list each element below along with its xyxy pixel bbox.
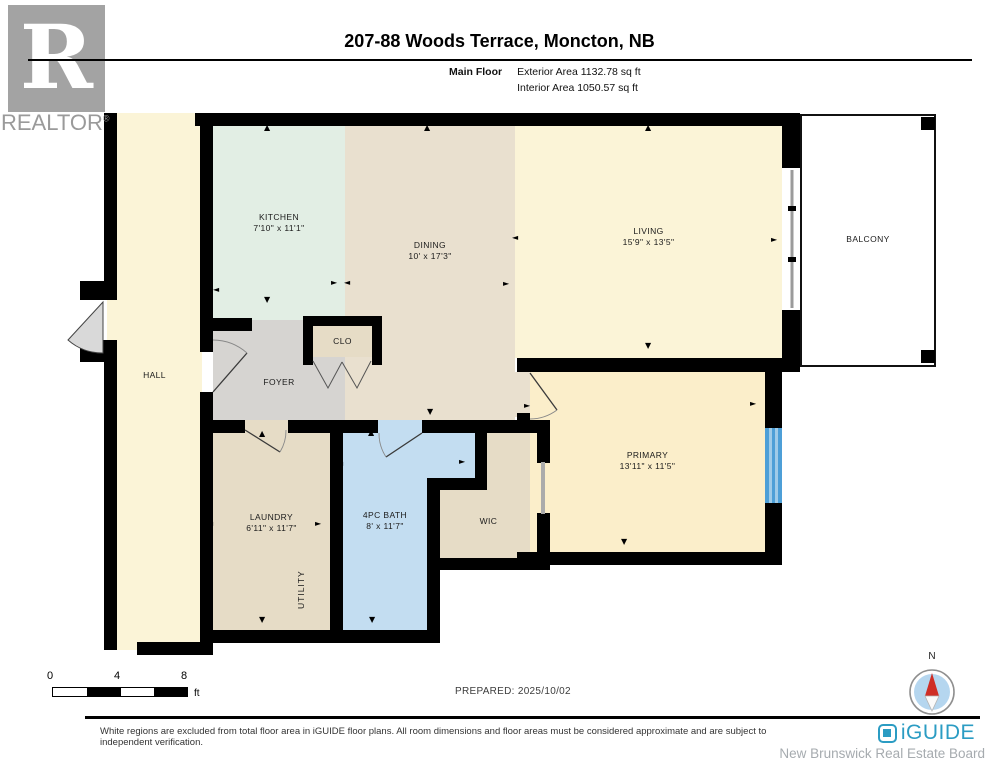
wall	[517, 358, 782, 372]
room-dims: 15'9" x 13'5"	[515, 237, 782, 248]
dimension-arrow-icon: ▼	[621, 538, 627, 546]
room-name: PRIMARY	[530, 450, 765, 461]
scale-segment	[154, 688, 187, 696]
floor-label: Main Floor	[449, 66, 502, 98]
room-name: WIC	[440, 516, 537, 527]
wall	[137, 642, 213, 655]
hall-label: HALL	[107, 370, 202, 381]
room-dims: 7'10" x 11'1"	[213, 223, 345, 234]
wall	[427, 490, 440, 643]
bath-label: 4PC BATH 8' x 11'7"	[343, 510, 427, 532]
kitchen-label: KITCHEN 7'10" x 11'1"	[213, 212, 345, 234]
scale-segment	[53, 688, 87, 696]
dimension-arrow-icon: ▲	[621, 364, 627, 372]
wall	[200, 392, 213, 433]
scale-segment	[121, 688, 154, 696]
scale-segment	[87, 688, 121, 696]
iguide-logo: iGUIDE	[878, 721, 975, 745]
laundry-label: LAUNDRY 6'11" x 11'7"	[213, 512, 330, 534]
dimension-arrow-icon: ►	[771, 236, 777, 244]
dimension-arrow-icon: ▲	[259, 430, 265, 438]
wall	[200, 433, 213, 643]
wall	[422, 420, 477, 433]
dimension-arrow-icon: ►	[524, 402, 530, 410]
dimension-arrow-icon: ◄	[512, 234, 518, 242]
dimension-arrow-icon: ◄	[213, 286, 219, 294]
room-bath-alcove	[427, 433, 475, 478]
wall	[303, 316, 382, 326]
scale-tick-0: 0	[47, 670, 53, 682]
bath-doorway	[378, 420, 422, 433]
board-name: New Brunswick Real Estate Board	[779, 746, 985, 761]
floor-plan-page: 207-88 Woods Terrace, Moncton, NB Main F…	[0, 0, 999, 768]
room-dims: 13'11" x 11'5"	[530, 461, 765, 472]
scale-tick-4: 4	[114, 670, 120, 682]
wall	[921, 117, 935, 130]
wall	[200, 630, 440, 643]
dimension-arrow-icon: ▼	[264, 296, 270, 304]
compass-icon	[910, 670, 954, 714]
room-dims: 10' x 17'3"	[345, 251, 515, 262]
dining-label: DINING 10' x 17'3"	[345, 240, 515, 262]
wall	[213, 420, 245, 433]
exterior-area: Exterior Area 1132.78 sq ft	[517, 66, 641, 78]
laundry-doorway	[245, 420, 288, 433]
footer-divider	[85, 716, 980, 719]
floor-areas: Exterior Area 1132.78 sq ft Interior Are…	[517, 66, 641, 98]
dimension-arrow-icon: ▼	[369, 616, 375, 624]
dimension-arrow-icon: ►	[503, 280, 509, 288]
floor-info: Main Floor Exterior Area 1132.78 sq ft I…	[449, 66, 641, 98]
scale-unit: ft	[194, 688, 200, 699]
registered-mark: ®	[103, 114, 110, 124]
wall	[288, 420, 330, 433]
wall	[80, 281, 117, 300]
realtor-wordmark: REALTOR®	[1, 110, 110, 136]
dimension-arrow-icon: ◄	[207, 520, 213, 528]
room-dims: 6'11" x 11'7"	[213, 523, 330, 534]
wall	[427, 478, 487, 490]
wall	[195, 113, 800, 126]
window	[765, 428, 782, 503]
room-name: LIVING	[515, 226, 782, 237]
header-divider	[28, 59, 972, 61]
dimension-arrow-icon: ►	[331, 279, 337, 287]
dimension-arrow-icon: ◄	[344, 279, 350, 287]
wall	[517, 552, 782, 565]
dimension-arrow-icon: ▲	[368, 429, 374, 437]
wall	[782, 310, 800, 372]
room-dims: 8' x 11'7"	[343, 521, 427, 532]
closet-label: CLO	[303, 336, 382, 347]
living-label: LIVING 15'9" x 13'5"	[515, 226, 782, 248]
room-name: LAUNDRY	[213, 512, 330, 523]
room-name: 4PC BATH	[343, 510, 427, 521]
interior-area: Interior Area 1050.57 sq ft	[517, 82, 641, 94]
balcony-label: BALCONY	[800, 234, 936, 245]
primary-label: PRIMARY 13'11" x 11'5"	[530, 450, 765, 472]
compass-north-label: N	[925, 651, 939, 662]
dimension-arrow-icon: ►	[315, 520, 321, 528]
utility-label: UTILITY	[296, 550, 312, 630]
room-hall	[107, 113, 202, 650]
room-name: KITCHEN	[213, 212, 345, 223]
page-title: 207-88 Woods Terrace, Moncton, NB	[0, 31, 999, 52]
dimension-arrow-icon: ►	[459, 458, 465, 466]
dimension-arrow-icon: ▲	[264, 124, 270, 132]
dimension-arrow-icon: ▼	[259, 616, 265, 624]
iguide-wordmark: iGUIDE	[901, 721, 975, 745]
dimension-arrow-icon: ▲	[645, 124, 651, 132]
wall	[104, 113, 117, 300]
dimension-arrow-icon: ▼	[645, 342, 651, 350]
dimension-arrow-icon: ▼	[427, 408, 433, 416]
wall	[200, 320, 213, 352]
room-name: HALL	[107, 370, 202, 381]
scale-tick-8: 8	[181, 670, 187, 682]
dimension-arrow-icon: ◄	[337, 460, 343, 468]
room-name: FOYER	[213, 377, 345, 388]
wall	[921, 350, 935, 363]
realtor-text: REALTOR	[1, 110, 103, 135]
primary-doorway	[515, 372, 530, 417]
room-name: DINING	[345, 240, 515, 251]
dimension-arrow-icon: ►	[750, 400, 756, 408]
wall	[517, 413, 530, 433]
wall	[782, 113, 800, 168]
wall	[104, 340, 117, 650]
scale-bar	[52, 687, 188, 697]
realtor-r-icon: R	[20, 5, 93, 109]
dimension-arrow-icon: ▲	[424, 124, 430, 132]
foyer-label: FOYER	[213, 377, 345, 388]
wall	[330, 420, 343, 643]
disclaimer-text: White regions are excluded from total fl…	[100, 726, 800, 748]
iguide-icon	[878, 724, 897, 743]
room-name: CLO	[303, 336, 382, 347]
room-name: BALCONY	[800, 234, 936, 245]
prepared-date: PREPARED: 2025/10/02	[455, 686, 571, 697]
room-dining	[345, 126, 515, 420]
wall	[200, 113, 213, 320]
wic-label: WIC	[440, 516, 537, 527]
